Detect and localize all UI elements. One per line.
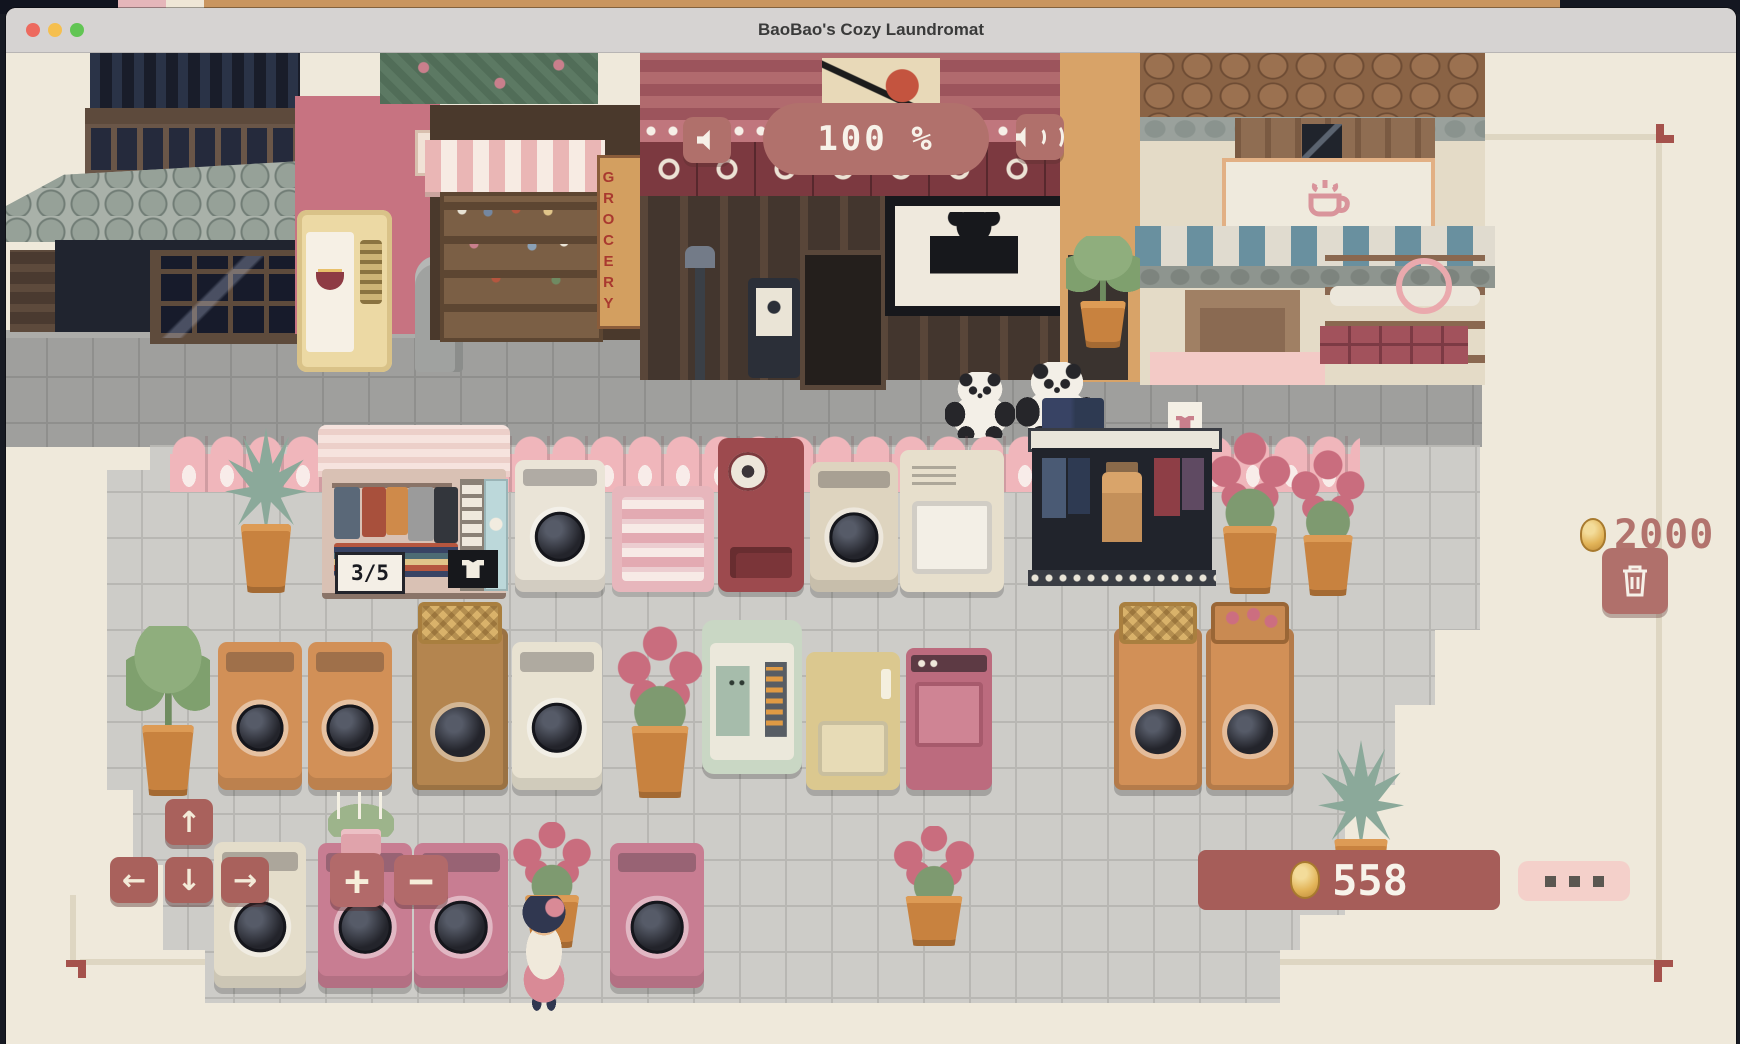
washer[interactable] bbox=[610, 843, 704, 988]
izakaya-top bbox=[90, 52, 300, 112]
coin-icon bbox=[1290, 861, 1320, 899]
durability-pill: 100 % bbox=[763, 103, 989, 175]
rack-garment bbox=[434, 487, 458, 543]
stall-dotted-rail bbox=[1028, 570, 1216, 586]
washer[interactable] bbox=[308, 642, 392, 790]
rack-garment bbox=[408, 487, 434, 541]
cafe-roof bbox=[1140, 52, 1485, 122]
vend-maroon[interactable] bbox=[718, 438, 804, 592]
increase-button[interactable]: + bbox=[330, 853, 384, 907]
app-window: GROCERY bbox=[6, 8, 1736, 1044]
pot-palm bbox=[1066, 236, 1140, 348]
washer[interactable] bbox=[515, 460, 605, 592]
titlebar: BaoBao's Cozy Laundromat bbox=[6, 8, 1736, 53]
stall-garment bbox=[1042, 458, 1066, 518]
placement-guide-line bbox=[70, 895, 76, 961]
stall-garment bbox=[1068, 458, 1090, 514]
rack-garment bbox=[334, 487, 360, 539]
locker[interactable] bbox=[806, 652, 900, 790]
stall-garment bbox=[1154, 458, 1180, 516]
washer[interactable] bbox=[810, 462, 898, 592]
rack-garment bbox=[386, 487, 408, 535]
move-left-button[interactable]: ← bbox=[110, 857, 158, 903]
game-stage: GROCERY bbox=[6, 8, 1736, 1044]
move-right-button[interactable]: → bbox=[221, 857, 269, 903]
rooftop-hedge bbox=[380, 52, 598, 104]
crate[interactable] bbox=[412, 628, 508, 790]
tailor-stall[interactable] bbox=[1028, 428, 1216, 596]
boundary-corner-mark bbox=[1656, 135, 1674, 143]
izakaya-beam bbox=[85, 108, 300, 124]
trash-button[interactable] bbox=[1602, 548, 1668, 614]
grocery-shelf bbox=[440, 192, 603, 342]
coin-icon bbox=[1580, 518, 1606, 552]
rack-capacity-badge: 3/5 bbox=[335, 552, 405, 594]
move-up-button[interactable]: ↑ bbox=[165, 799, 213, 845]
stall-keeper bbox=[1102, 472, 1142, 542]
wallet-amount: 558 bbox=[1332, 856, 1408, 905]
izakaya-window-grid bbox=[150, 250, 308, 344]
grocery-sign: GROCERY bbox=[597, 155, 645, 329]
crateflower[interactable] bbox=[1206, 628, 1294, 790]
ellipsis-icon bbox=[1593, 876, 1604, 887]
speaker-icon bbox=[697, 128, 717, 152]
stall-garment bbox=[1182, 458, 1204, 510]
speaker-waves-icon bbox=[1016, 125, 1031, 149]
washer[interactable] bbox=[218, 642, 302, 790]
vend-mint[interactable] bbox=[702, 620, 802, 774]
rack-shirt-badge bbox=[448, 550, 498, 588]
sound-wave-icon bbox=[1033, 127, 1046, 147]
pot-flower[interactable] bbox=[614, 626, 706, 798]
crate[interactable] bbox=[1114, 628, 1202, 790]
grocery-awning bbox=[425, 140, 605, 197]
coffee-cup-icon bbox=[1297, 176, 1361, 224]
cafe-side-ring-sign bbox=[1396, 258, 1452, 314]
menu-board-card bbox=[756, 288, 792, 336]
move-down-button[interactable]: ↓ bbox=[165, 857, 213, 903]
more-options-button[interactable] bbox=[1518, 861, 1630, 901]
pinkmach[interactable] bbox=[906, 648, 992, 790]
cafe-pink-base bbox=[1150, 352, 1325, 385]
shirt-icon bbox=[462, 560, 484, 578]
pot-flower[interactable] bbox=[1206, 432, 1294, 594]
ramen-vending-panel bbox=[306, 232, 354, 352]
street-lamp-head bbox=[685, 246, 715, 268]
ramenshop-door bbox=[800, 250, 886, 390]
decrease-button[interactable]: − bbox=[394, 855, 448, 905]
street-lamp bbox=[695, 262, 705, 380]
towels[interactable] bbox=[612, 486, 714, 592]
trash-icon bbox=[1619, 563, 1651, 599]
window-title: BaoBao's Cozy Laundromat bbox=[6, 8, 1736, 52]
pot-palm[interactable] bbox=[126, 626, 210, 796]
screenshot-root: GROCERY bbox=[0, 0, 1740, 1044]
cafe-side-bricks bbox=[1320, 326, 1468, 364]
ellipsis-icon bbox=[1569, 876, 1580, 887]
sfx-volume-button[interactable] bbox=[683, 117, 731, 163]
ramen-vending-buttons bbox=[360, 240, 382, 304]
ellipsis-icon bbox=[1545, 876, 1556, 887]
pot-flower[interactable] bbox=[1288, 450, 1368, 596]
girl bbox=[514, 896, 574, 1012]
boundary-corner-mark bbox=[78, 960, 86, 978]
boundary-corner-mark bbox=[1654, 960, 1662, 982]
wallet-bar: 558 bbox=[1198, 850, 1500, 910]
dryer[interactable] bbox=[900, 450, 1004, 592]
izakaya-stairs bbox=[10, 250, 55, 332]
pot-candle[interactable] bbox=[328, 792, 394, 856]
rack-garment bbox=[362, 487, 386, 537]
panda bbox=[945, 372, 1015, 438]
sound-wave-icon bbox=[1048, 124, 1064, 150]
music-volume-button[interactable] bbox=[1016, 114, 1064, 160]
ramenshop-sign-figure bbox=[930, 212, 1018, 282]
washer[interactable] bbox=[512, 642, 602, 790]
pot-agave[interactable] bbox=[225, 428, 307, 593]
pot-flower[interactable] bbox=[888, 826, 980, 946]
